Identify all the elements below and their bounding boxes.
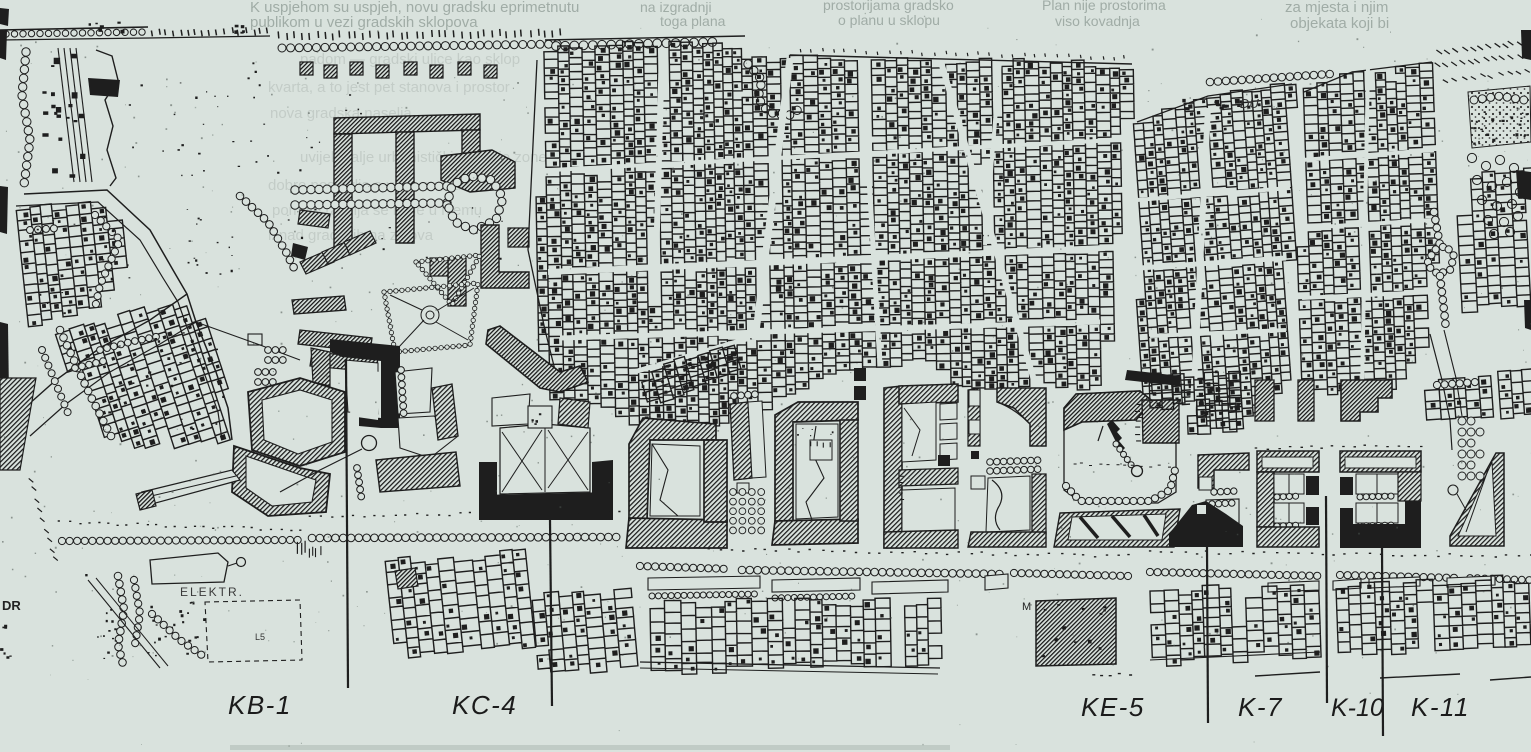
svg-text:DR: DR: [2, 598, 21, 613]
svg-text:L5: L5: [255, 632, 265, 642]
svg-text:kvarta, a to jest pet stanova: kvarta, a to jest pet stanova i prostor: [268, 79, 510, 96]
svg-text:M: M: [1022, 601, 1031, 613]
svg-text:K-10: K-10: [1331, 694, 1384, 722]
svg-text:DU: DU: [1240, 96, 1259, 111]
svg-text:KB-1: KB-1: [228, 690, 292, 720]
svg-text:publikom u vezi gradskih sk: publikom u vezi gradskih sklopova: [250, 14, 478, 31]
svg-text:objekata koji bi: objekata koji bi: [1290, 15, 1389, 32]
svg-text:KC-4: KC-4: [452, 690, 517, 720]
svg-text:KE-5: KE-5: [1081, 692, 1145, 722]
svg-text:K-11: K-11: [1411, 692, 1470, 722]
svg-text:toga plana: toga plana: [660, 13, 726, 29]
svg-text:o planu u sklopu: o planu u sklopu: [838, 12, 940, 28]
svg-text:ELEKTR.: ELEKTR.: [180, 585, 244, 599]
svg-text:viso kovadnja: viso kovadnja: [1055, 13, 1140, 29]
svg-text:za mjesta i njim: za mjesta i njim: [1285, 0, 1388, 16]
svg-text:Plan nije prostorima: Plan nije prostorima: [1042, 0, 1166, 13]
svg-text:K-7: K-7: [1238, 692, 1283, 722]
